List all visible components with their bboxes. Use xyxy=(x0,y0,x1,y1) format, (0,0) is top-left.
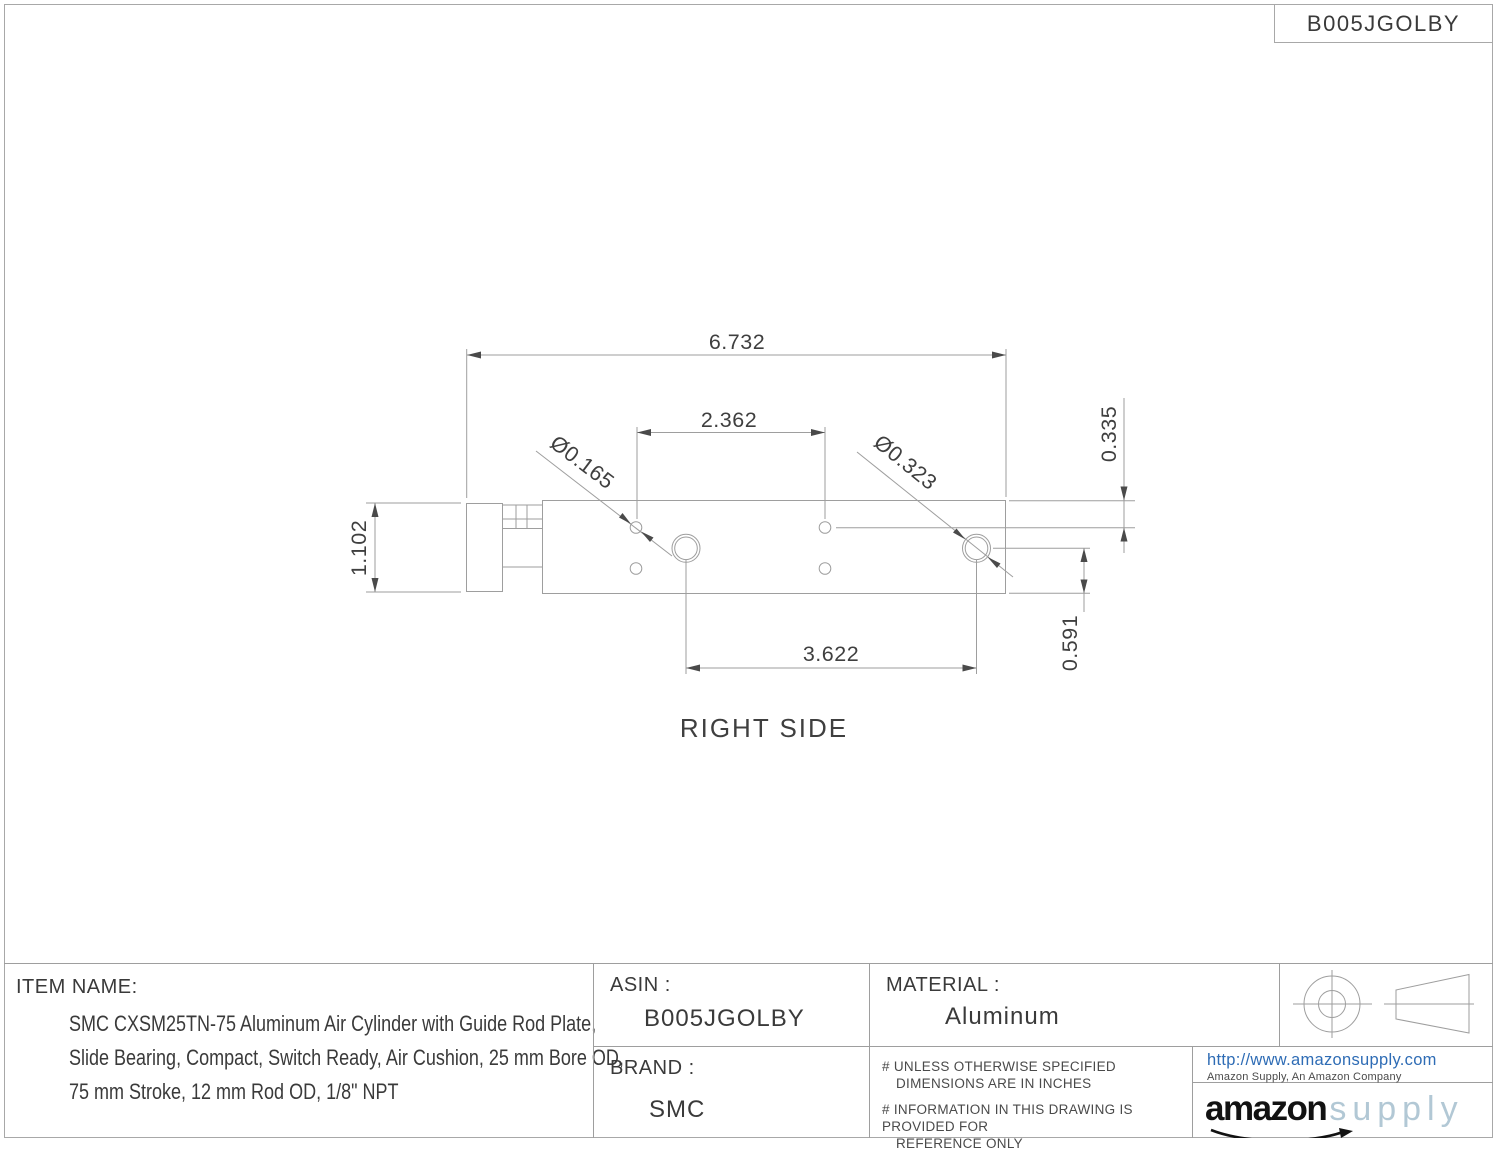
item-name-text: SMC CXSM25TN-75 Aluminum Air Cylinder wi… xyxy=(69,1007,661,1109)
item-name-line: Slide Bearing, Compact, Switch Ready, Ai… xyxy=(69,1041,661,1075)
supply-logo-text: supply xyxy=(1329,1090,1463,1128)
company-url: http://www.amazonsupply.com xyxy=(1207,1051,1493,1070)
dimension-top-hole-spacing xyxy=(637,427,825,519)
note-dimensions-in-inches: # UNLESS OTHERWISE SPECIFIED DIMENSIONS … xyxy=(882,1058,1192,1092)
brand-cell: BRAND : SMC xyxy=(593,1047,869,1138)
large-port-hole-inner xyxy=(675,537,698,560)
item-name-label: ITEM NAME: xyxy=(16,976,593,999)
asin-cell: ASIN : B005JGOLBY xyxy=(593,963,869,1047)
item-name-line: 75 mm Stroke, 12 mm Rod OD, 1/8" NPT xyxy=(69,1075,661,1109)
item-name-line: SMC CXSM25TN-75 Aluminum Air Cylinder wi… xyxy=(69,1007,661,1041)
dimension-bottom-hole-offset xyxy=(993,548,1090,612)
dim-text-small-hole-dia: Ø0.165 xyxy=(546,431,619,494)
engineering-drawing-page: { "page": { "asin_box": "B005JGOLBY", "v… xyxy=(0,0,1500,1143)
amazon-smile-icon xyxy=(1207,1127,1359,1138)
material-value: Aluminum xyxy=(945,1003,1279,1031)
brand-label: BRAND : xyxy=(610,1057,869,1080)
cylinder-body-outline xyxy=(543,501,1006,594)
dim-text-bottom-hole-offset: 0.591 xyxy=(1058,615,1082,671)
material-cell: MATERIAL : Aluminum xyxy=(869,963,1279,1047)
third-angle-projection-icon xyxy=(1280,964,1492,1046)
company-tagline: Amazon Supply, An Amazon Company xyxy=(1207,1071,1493,1083)
guide-rod-plate-outline xyxy=(467,504,503,592)
small-mounting-hole xyxy=(630,563,642,575)
asin-label: ASIN : xyxy=(610,974,869,997)
dim-text-large-hole-dia: Ø0.323 xyxy=(869,430,941,495)
dim-text-bottom-hole-spacing: 3.622 xyxy=(803,642,859,666)
piston-rod-detail xyxy=(503,505,542,567)
dimension-top-hole-offset xyxy=(836,398,1135,553)
projection-symbol-cell xyxy=(1279,963,1493,1047)
item-name-cell: ITEM NAME: SMC CXSM25TN-75 Aluminum Air … xyxy=(4,963,593,1138)
company-logo-cell: amazonsupply xyxy=(1192,1083,1493,1138)
small-mounting-hole xyxy=(819,522,831,534)
company-url-cell: http://www.amazonsupply.com Amazon Suppl… xyxy=(1192,1047,1493,1083)
notes-cell: # UNLESS OTHERWISE SPECIFIED DIMENSIONS … xyxy=(869,1047,1192,1138)
dimension-body-height xyxy=(366,503,461,592)
asin-value: B005JGOLBY xyxy=(644,1005,869,1033)
small-mounting-hole xyxy=(819,563,831,575)
dim-text-overall-length: 6.732 xyxy=(709,330,765,354)
view-title: RIGHT SIDE xyxy=(680,713,848,743)
brand-value: SMC xyxy=(649,1096,869,1124)
dim-text-body-height: 1.102 xyxy=(347,520,371,576)
amazon-logo-text: amazon xyxy=(1205,1089,1326,1128)
dim-text-top-hole-offset: 0.335 xyxy=(1097,406,1121,462)
dim-text-top-hole-spacing: 2.362 xyxy=(701,408,757,432)
material-label: MATERIAL : xyxy=(886,974,1279,997)
large-port-hole xyxy=(672,534,700,562)
note-reference-only: # INFORMATION IN THIS DRAWING IS PROVIDE… xyxy=(882,1101,1192,1152)
